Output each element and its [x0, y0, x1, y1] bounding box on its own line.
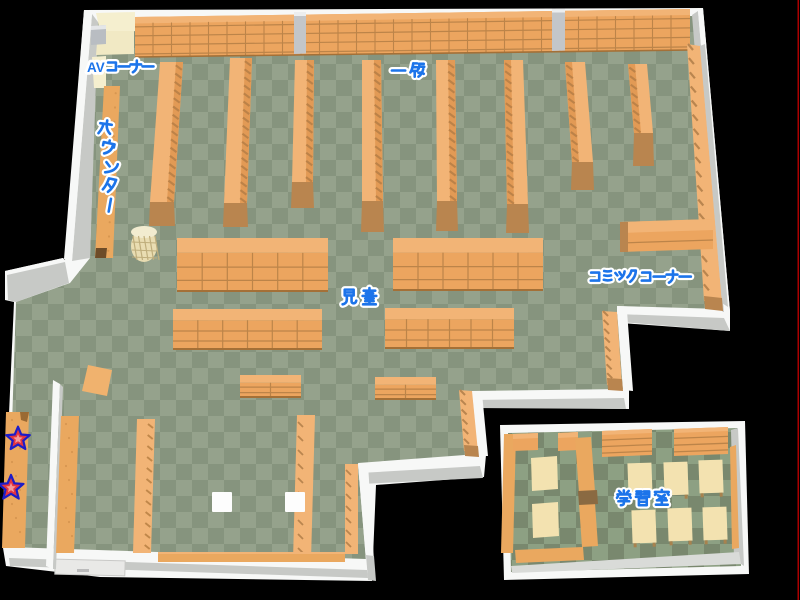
svg-text:AV: AV: [87, 60, 105, 75]
